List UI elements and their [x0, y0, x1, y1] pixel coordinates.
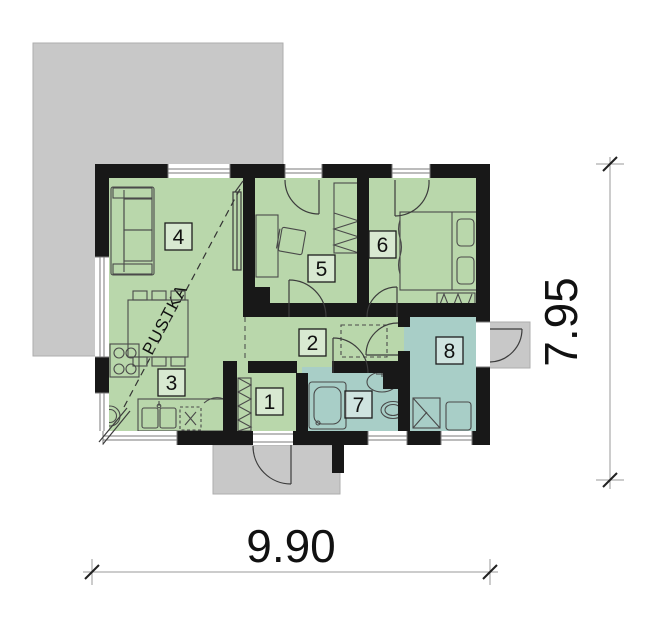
window-utility-bottom: [441, 431, 472, 445]
height-dimension-label: 7.95: [535, 277, 587, 367]
room-label-8: 8: [436, 337, 463, 364]
window-living-left: [95, 257, 109, 357]
room-label-2: 2: [299, 329, 326, 356]
svg-text:5: 5: [316, 258, 328, 281]
room-label-7: 7: [345, 391, 372, 418]
side-door-opening: [476, 322, 490, 367]
room-label-4: 4: [165, 223, 192, 250]
width-dimension-label: 9.90: [246, 520, 336, 572]
entrance-porch-area: [213, 445, 340, 494]
svg-text:6: 6: [377, 234, 389, 257]
svg-text:1: 1: [264, 391, 276, 414]
room-label-3: 3: [158, 369, 185, 396]
svg-text:2: 2: [307, 332, 319, 355]
svg-text:7: 7: [353, 394, 365, 417]
room-label-1: 1: [256, 388, 283, 415]
height-dimension: 7.95: [535, 157, 624, 489]
room-label-5: 5: [308, 255, 335, 282]
svg-text:4: 4: [173, 226, 185, 249]
window-room6-top: [392, 164, 430, 178]
svg-text:8: 8: [444, 340, 456, 363]
entrance-door-opening: [253, 431, 293, 445]
width-dimension: 9.90: [83, 520, 498, 585]
room-label-6: 6: [369, 231, 396, 258]
floor-plan-page: PUSTKA: [0, 0, 660, 628]
window-bathroom-bottom: [368, 431, 407, 445]
window-kitchen-left: [95, 393, 109, 431]
utility-room-area: [404, 311, 482, 437]
floor-plan-svg: PUSTKA: [0, 0, 660, 628]
window-room5-top: [285, 164, 322, 178]
svg-text:3: 3: [166, 372, 178, 395]
window-living-top: [168, 164, 230, 178]
